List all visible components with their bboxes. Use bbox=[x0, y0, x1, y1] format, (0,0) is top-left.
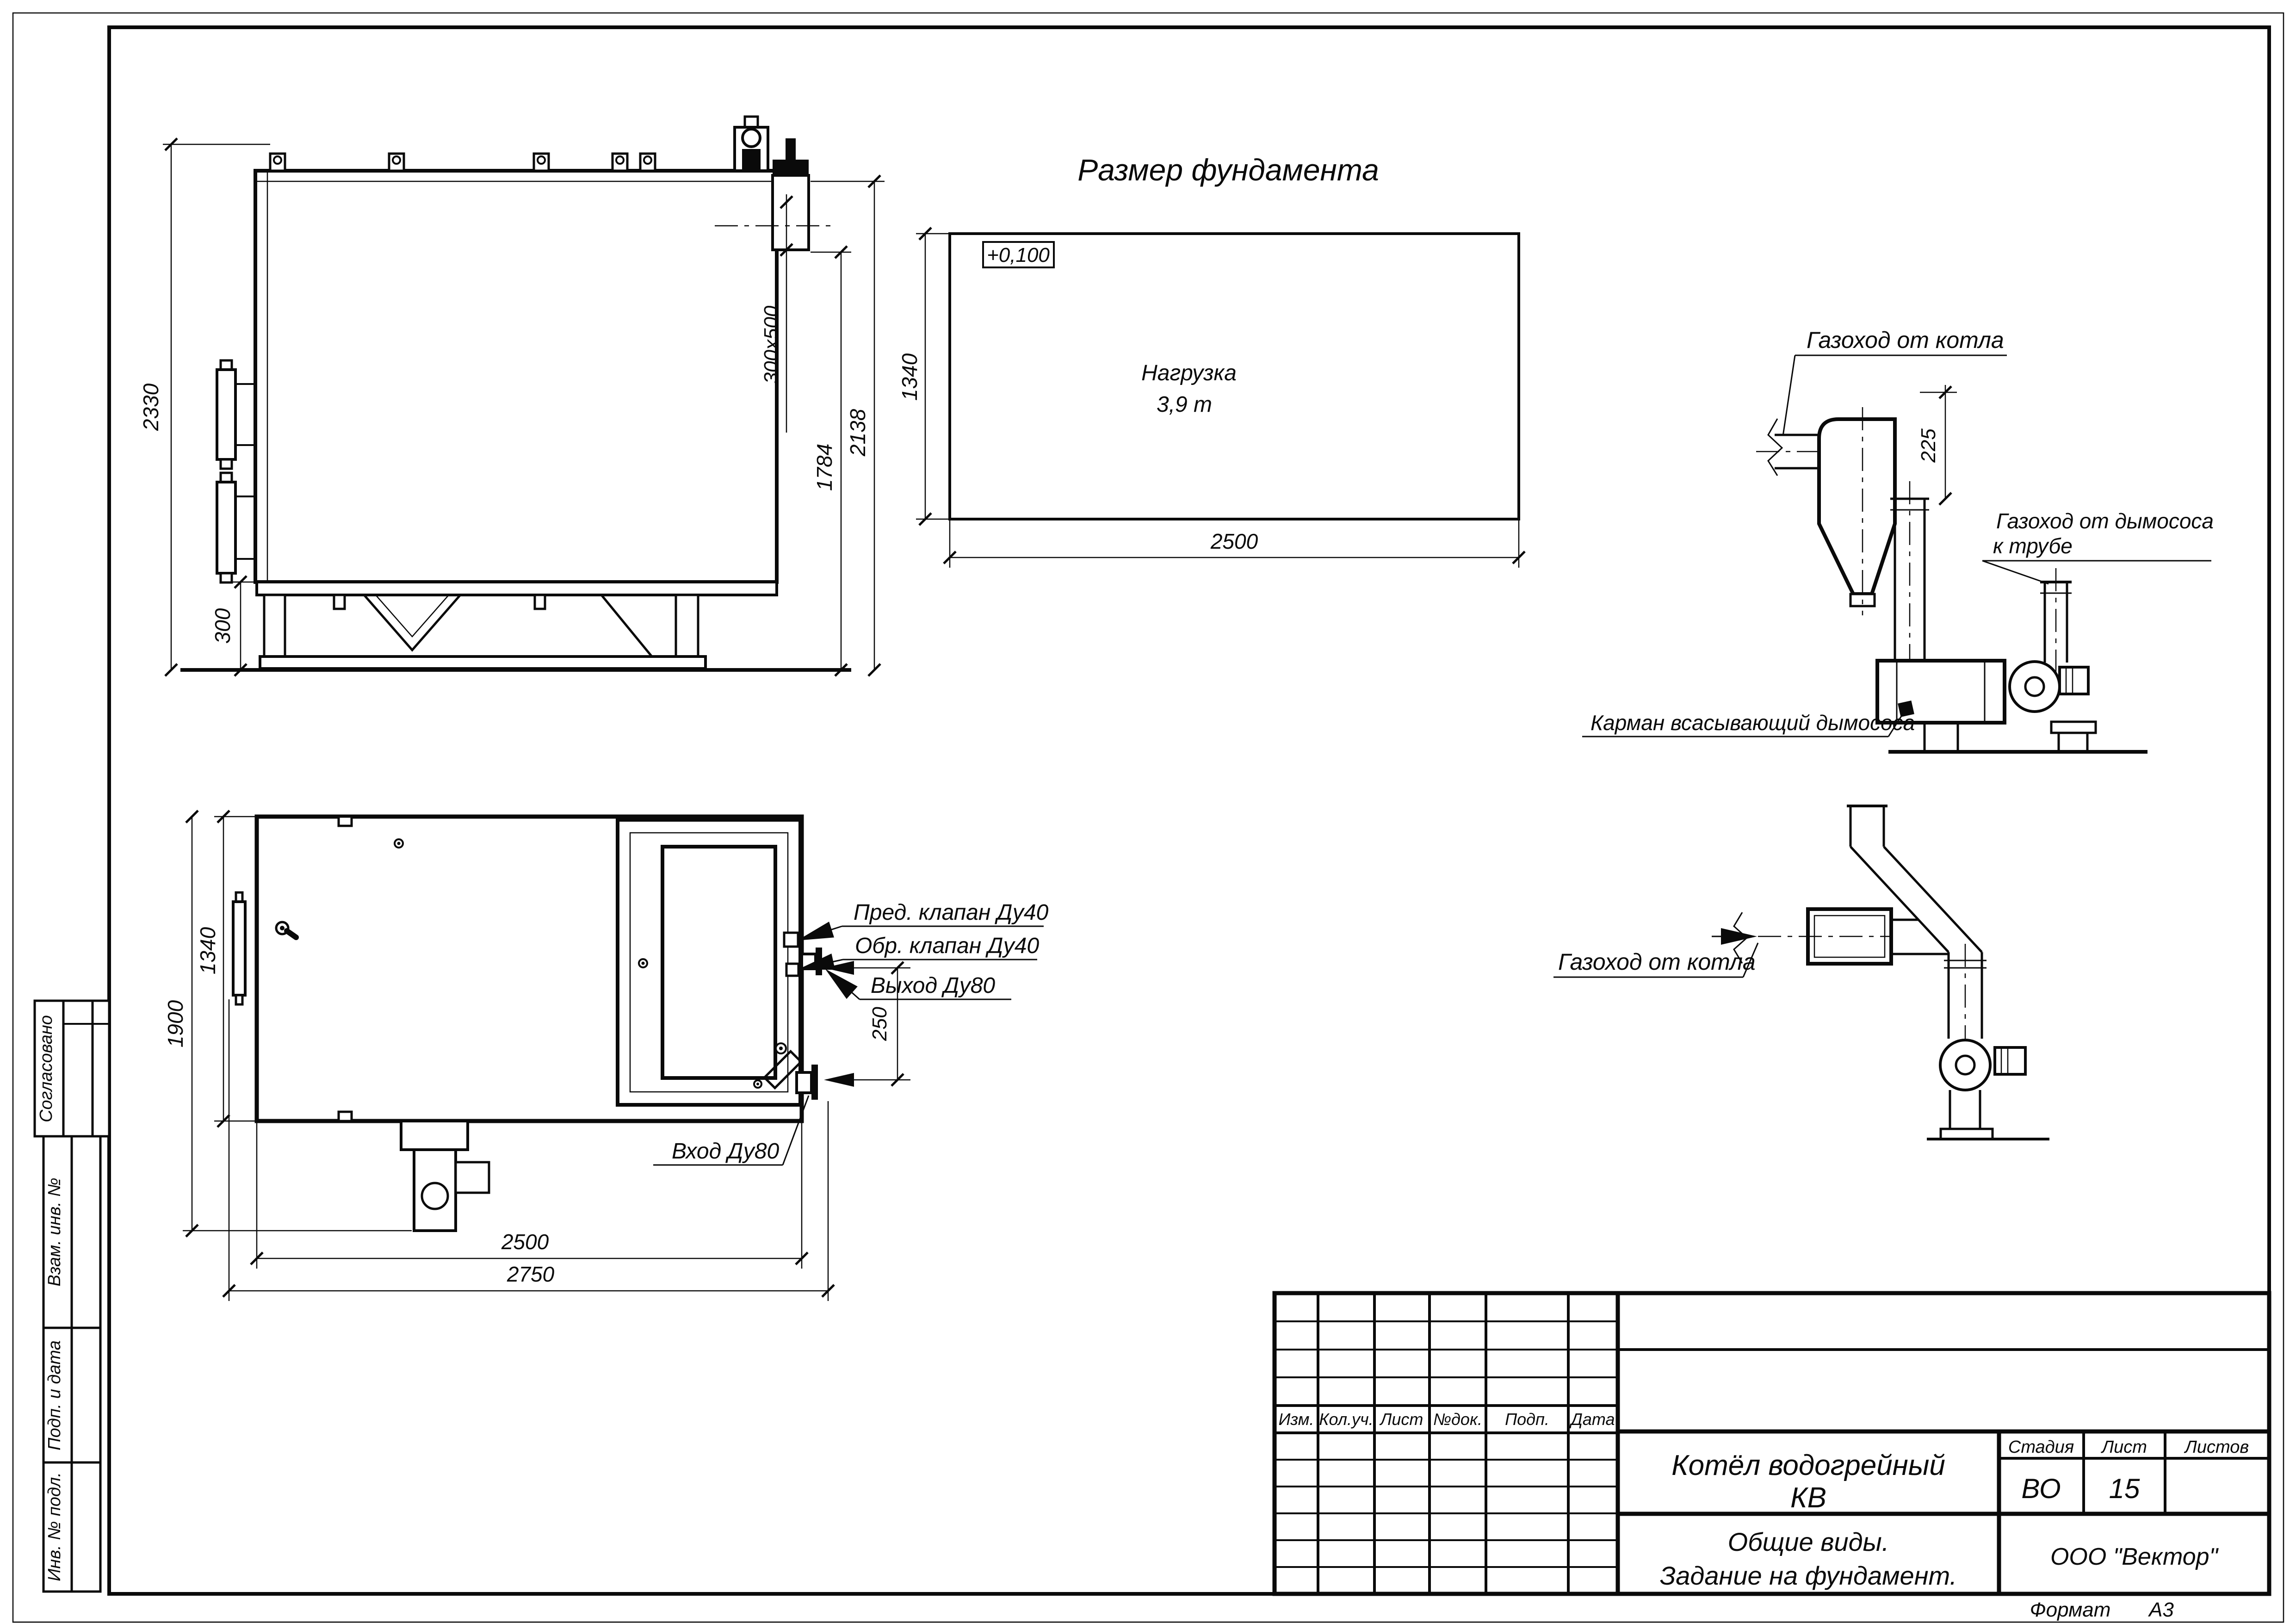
company-name: ООО "Вектор" bbox=[2050, 1543, 2219, 1570]
dim-300: 300 bbox=[210, 608, 235, 644]
foundation-plan: Размер фундамента +0,100 Нагрузка 3,9 т … bbox=[897, 153, 1525, 568]
flue-diagram-top: Газоход от котла 225 bbox=[1582, 327, 2214, 787]
elevation-mark: +0,100 bbox=[987, 244, 1050, 266]
dim-1900: 1900 bbox=[163, 1000, 187, 1047]
rev-header-list: Лист bbox=[1380, 1410, 1423, 1429]
rev-header-ndok: №док. bbox=[1433, 1410, 1482, 1429]
base-frame bbox=[257, 582, 777, 669]
chimney-hook bbox=[735, 117, 768, 171]
doc-name-line2: КВ bbox=[1790, 1482, 1826, 1514]
label-pocket: Карман всасывающий дымососа bbox=[1590, 711, 1915, 735]
dim-2330: 2330 bbox=[139, 383, 163, 431]
stage-value: ВО bbox=[2021, 1473, 2061, 1504]
burner bbox=[401, 1121, 489, 1231]
sheet-header: Лист bbox=[2100, 1437, 2147, 1457]
label-inlet: Вход Ду80 bbox=[672, 1139, 779, 1164]
label-safety-valve: Пред. клапан Ду40 bbox=[854, 900, 1049, 925]
smoke-exhauster bbox=[2010, 568, 2096, 751]
label-fan-flue-line1: Газоход от дымососа bbox=[1996, 509, 2214, 533]
dim-1340-plan: 1340 bbox=[196, 927, 220, 974]
stage-header: Стадия bbox=[2008, 1437, 2074, 1457]
ground-hatch bbox=[180, 670, 851, 718]
dim-2500-foundation: 2500 bbox=[1210, 529, 1258, 553]
foundation-title: Размер фундамента bbox=[1077, 153, 1379, 187]
boiler-side-view: 2330 300 300x500 2138 1784 bbox=[139, 117, 885, 718]
margin-label-podp: Подп. и дата bbox=[45, 1340, 64, 1450]
dim-1340-foundation: 1340 bbox=[897, 353, 922, 401]
rev-header-podp: Подп. bbox=[1505, 1410, 1549, 1429]
dim-225-group: 225 bbox=[1917, 385, 1957, 505]
rev-header-izm: Изм. bbox=[1279, 1410, 1314, 1429]
label-boiler-flue-top: Газоход от котла bbox=[1807, 327, 2004, 353]
subtitle-line1: Общие виды. bbox=[1728, 1527, 1889, 1556]
dim-300x500: 300x500 bbox=[760, 305, 783, 384]
load-label-line2: 3,9 т bbox=[1157, 392, 1212, 417]
sheet-value: 15 bbox=[2109, 1473, 2140, 1504]
dim-2750: 2750 bbox=[507, 1262, 555, 1286]
doc-name-line1: Котёл водогрейный bbox=[1671, 1450, 1945, 1481]
dim-1784: 1784 bbox=[812, 444, 836, 491]
label-fan-flue-line2: к трубе bbox=[1993, 534, 2073, 558]
label-check-valve: Обр. клапан Ду40 bbox=[855, 934, 1039, 958]
load-label-line1: Нагрузка bbox=[1141, 361, 1237, 385]
dim-2500-plan: 2500 bbox=[501, 1230, 549, 1254]
margin-label-vzam: Взам. инв. № bbox=[45, 1177, 64, 1286]
smoke-exhauster-mid bbox=[1927, 1040, 2049, 1164]
boiler-plan-view: Пред. клапан Ду40 Обр. клапан Ду40 Выход… bbox=[163, 811, 1049, 1301]
left-margin-boxes: Согласовано Взам. инв. № Подп. и дата Ин… bbox=[35, 1001, 109, 1592]
margin-label-inv: Инв. № подл. bbox=[45, 1472, 64, 1581]
label-boiler-flue-mid: Газоход от котла bbox=[1558, 949, 1756, 975]
sheets-header: Листов bbox=[2184, 1437, 2249, 1457]
dim-250: 250 bbox=[868, 1007, 891, 1041]
cyclone-hood bbox=[1819, 419, 1895, 594]
rev-header-data: Дата bbox=[1569, 1410, 1615, 1429]
format-value: А3 bbox=[2147, 1598, 2174, 1621]
dim-2138: 2138 bbox=[846, 409, 870, 457]
dim-225: 225 bbox=[1917, 428, 1940, 463]
margin-label-soglasovano: Согласовано bbox=[37, 1015, 56, 1122]
label-outlet: Выход Ду80 bbox=[871, 973, 995, 998]
lifting-lugs bbox=[270, 154, 655, 171]
flue-diagram-mid: Газоход от котла bbox=[1553, 806, 2049, 1164]
side-flanges bbox=[217, 360, 255, 582]
drawing-sheet: 2330 300 300x500 2138 1784 Размер фундам… bbox=[0, 0, 2296, 1623]
drawing-canvas: 2330 300 300x500 2138 1784 Размер фундам… bbox=[0, 0, 2296, 1623]
title-block: Изм. Кол.уч. Лист №док. Подп. Дата Котёл… bbox=[1275, 1293, 2269, 1594]
format-label: Формат bbox=[2030, 1598, 2111, 1621]
rev-header-koluch: Кол.уч. bbox=[1319, 1410, 1373, 1429]
subtitle-line2: Задание на фундамент. bbox=[1660, 1561, 1957, 1590]
